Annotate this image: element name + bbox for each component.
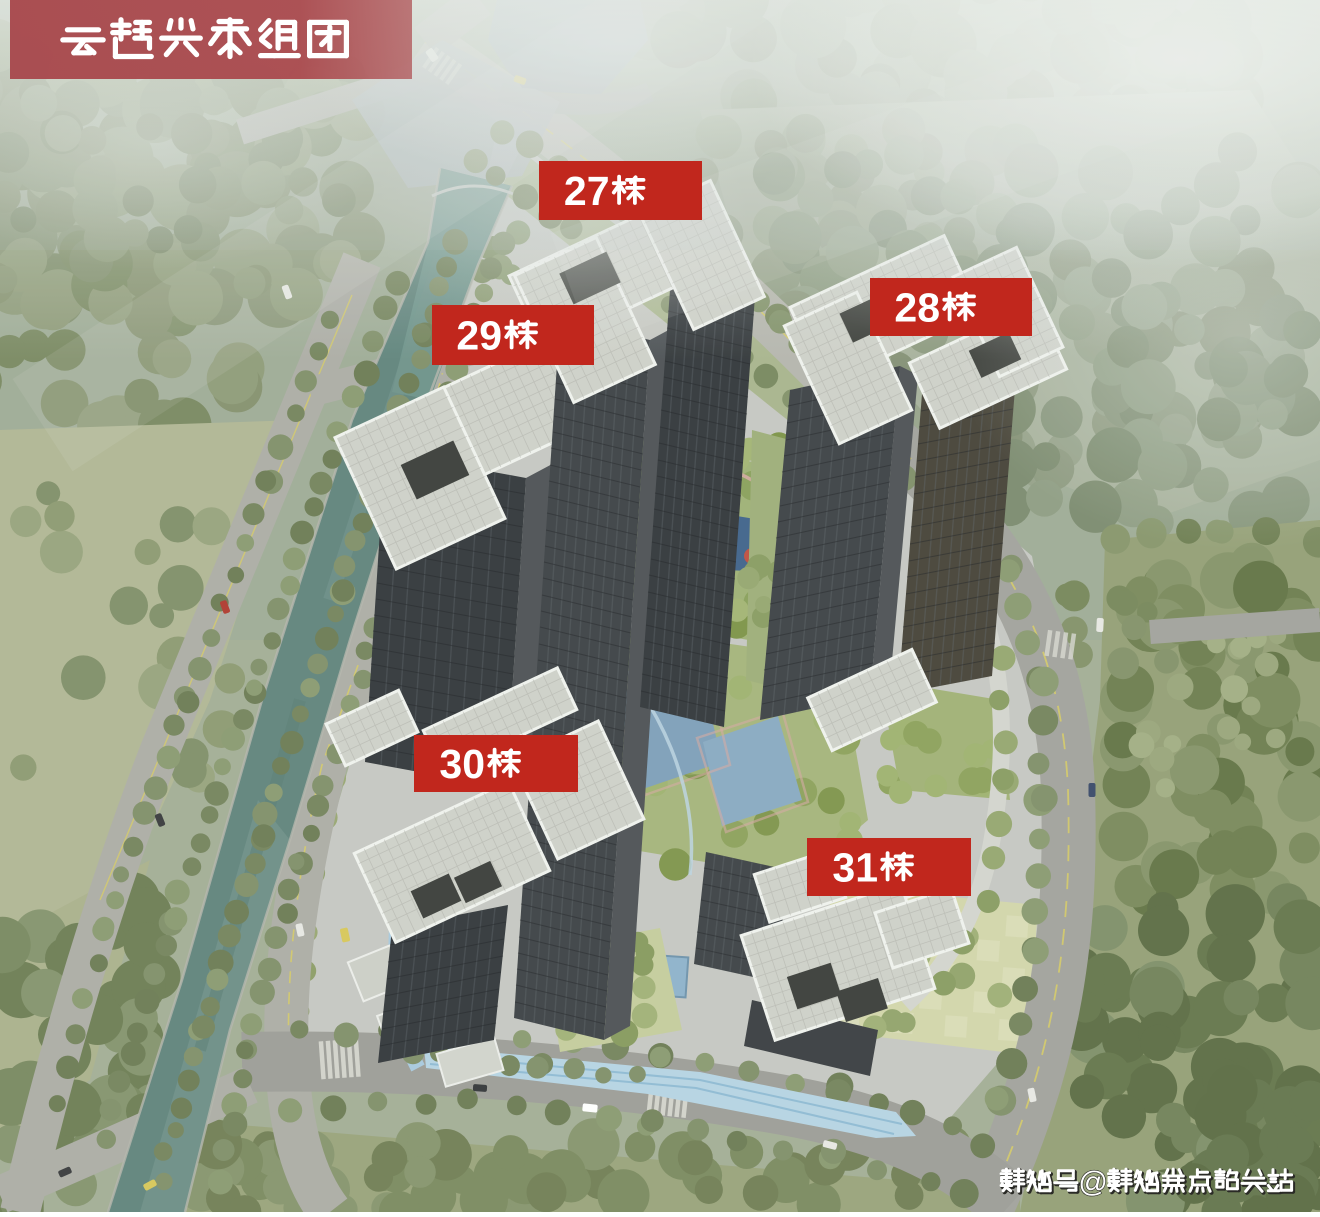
- svg-text:@: @: [1078, 1167, 1107, 1199]
- svg-text:29: 29: [456, 313, 502, 359]
- svg-text:27: 27: [564, 168, 610, 214]
- svg-text:28: 28: [894, 285, 940, 331]
- svg-text:31: 31: [832, 845, 878, 891]
- svg-text:30: 30: [439, 741, 485, 787]
